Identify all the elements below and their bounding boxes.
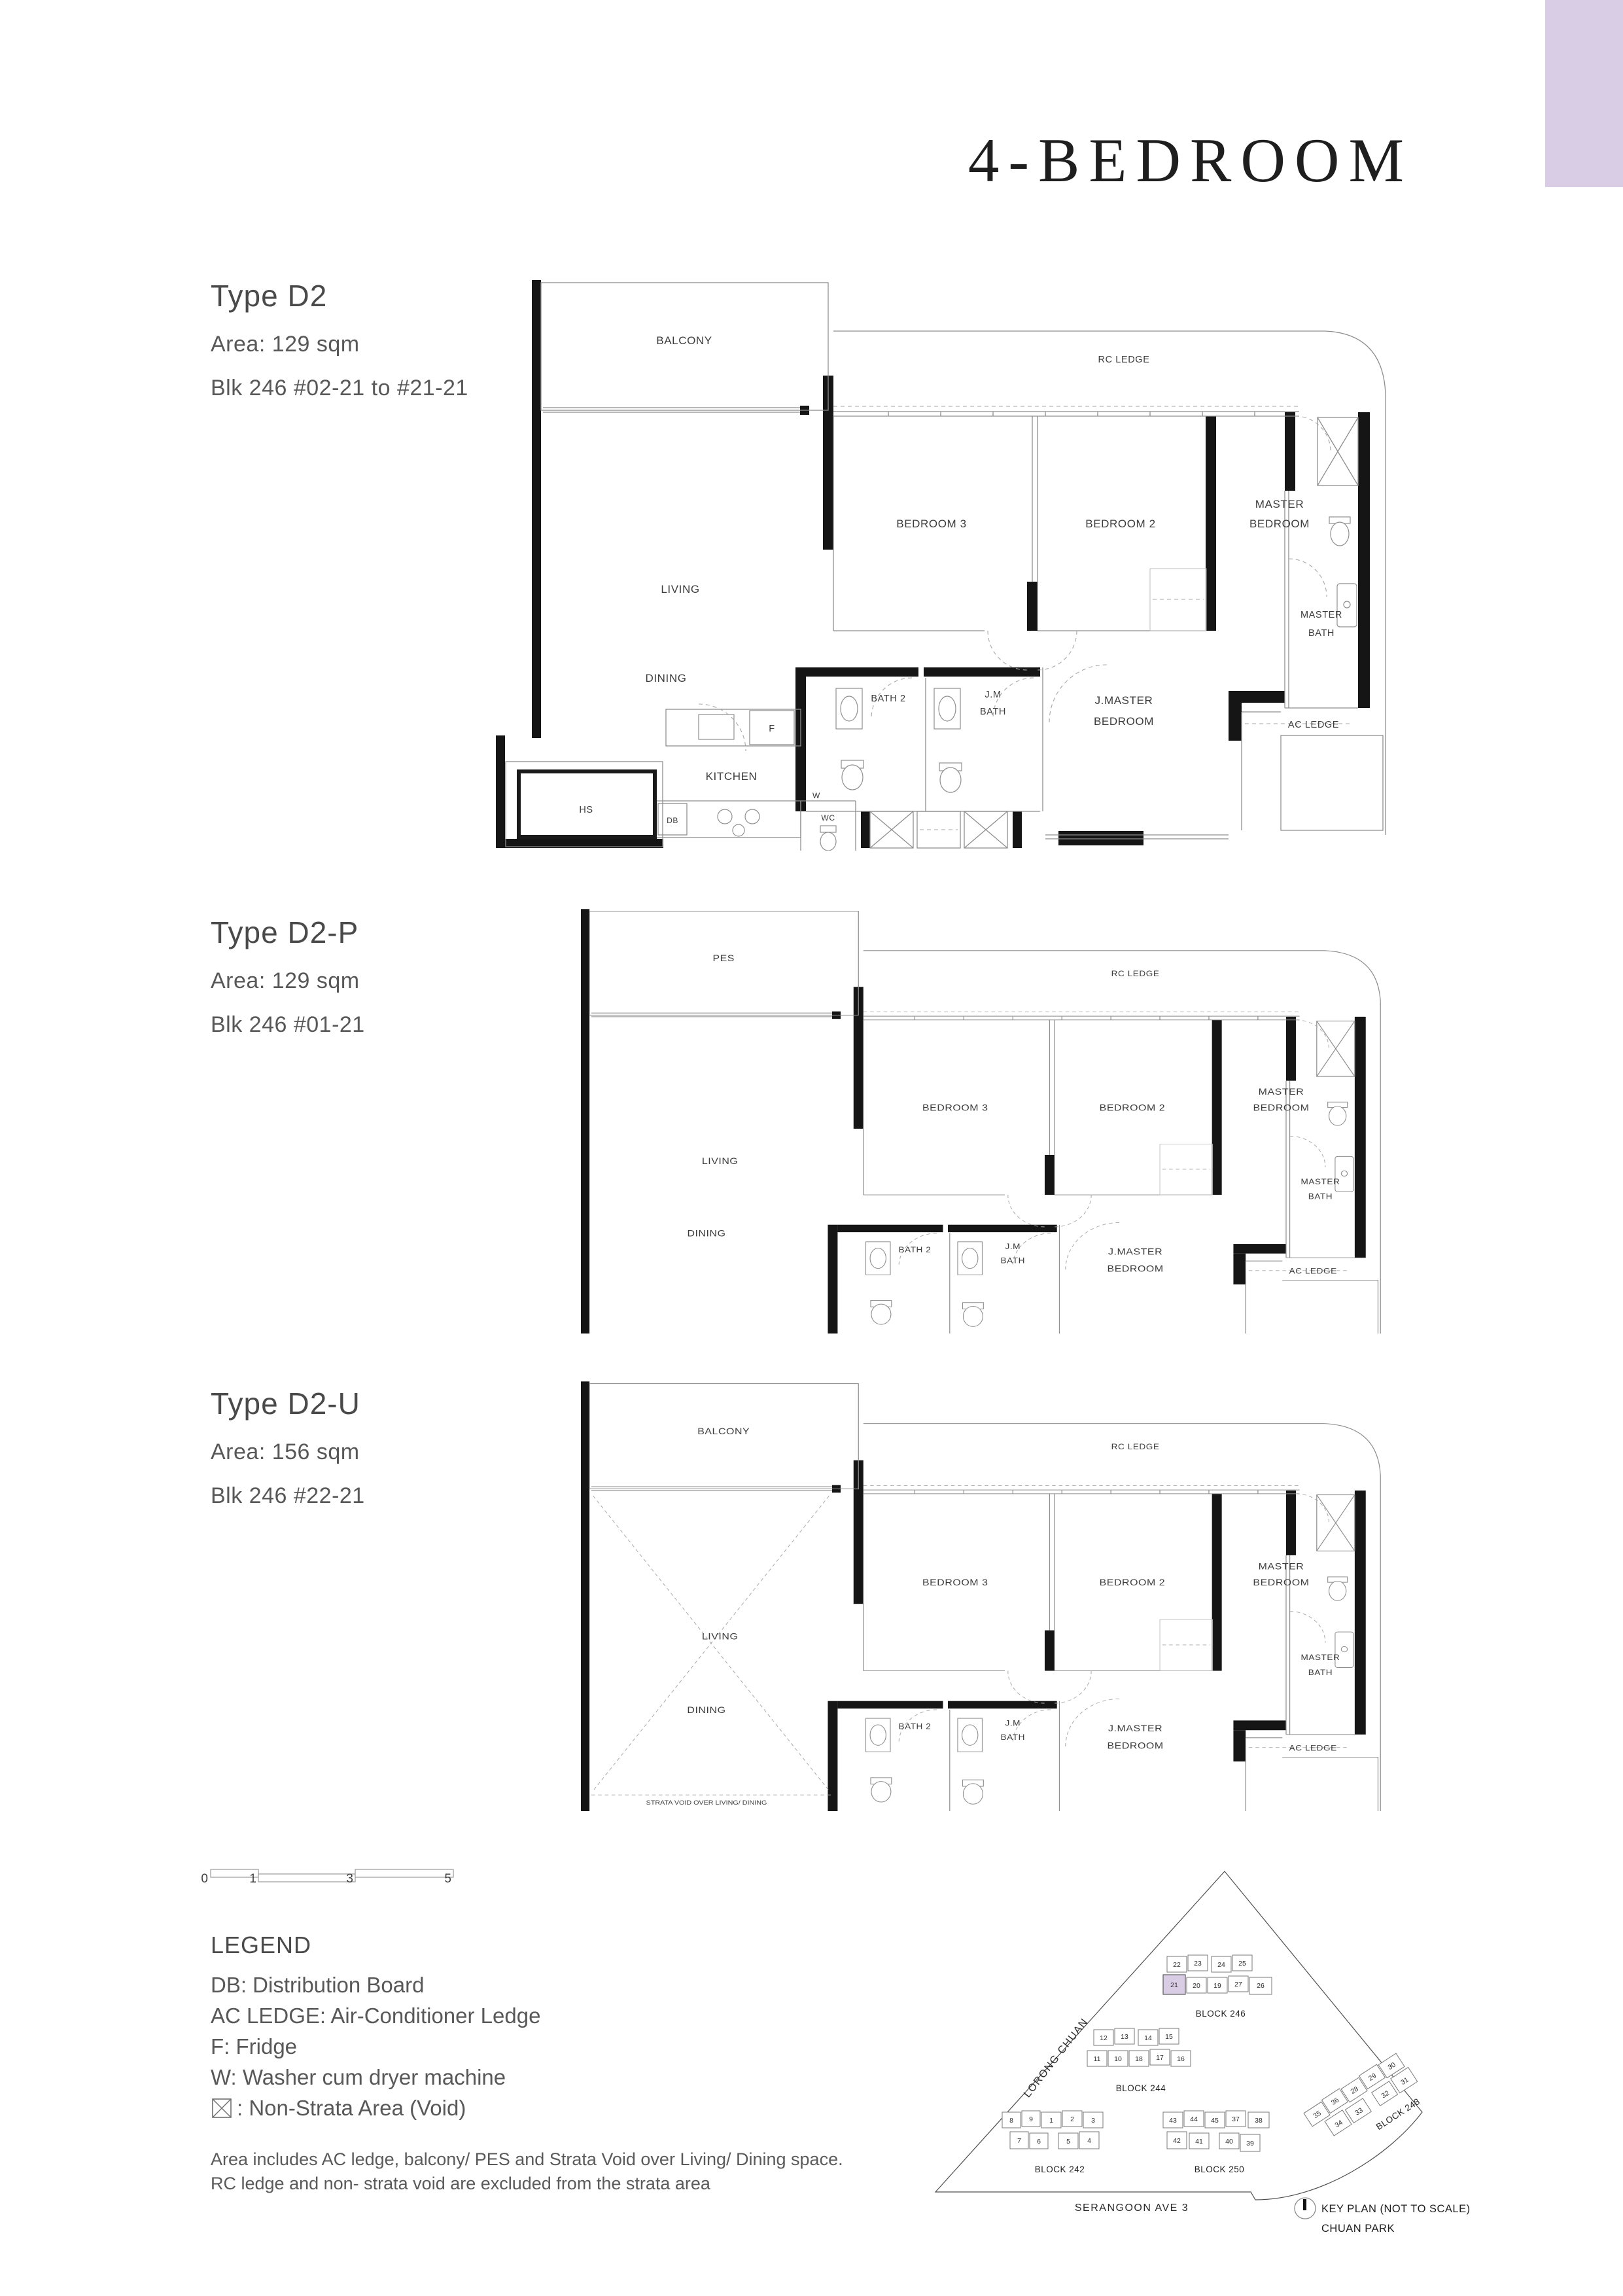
unit-12: 12 [1100, 2034, 1108, 2042]
legend: LEGEND DB: Distribution Board AC LEDGE: … [211, 1932, 540, 2123]
unit-10: 10 [1114, 2055, 1122, 2063]
unit-25: 25 [1238, 1960, 1246, 1968]
unit-3: 3 [1091, 2117, 1095, 2125]
unit-23: 23 [1194, 1960, 1202, 1968]
room-label-master-1: MASTER [1259, 1087, 1304, 1097]
type-d2p-area: Area: 129 sqm [211, 968, 360, 994]
room-label-masterbath-1: MASTER [1300, 1177, 1340, 1186]
room-label-jmaster-1: J.MASTER [1108, 1723, 1162, 1734]
room-label-masterbath-2: BATH [1308, 628, 1335, 639]
room-label-ac-ledge: AC LEDGE [1289, 1267, 1337, 1276]
room-label-living: LIVING [702, 1156, 739, 1167]
unit-19: 19 [1213, 1982, 1221, 1990]
room-label-dining: DINING [645, 672, 686, 684]
accent-corner-tab [1545, 0, 1623, 187]
legend-item-db: DB: Distribution Board [211, 1969, 540, 2000]
unit-15: 15 [1165, 2033, 1173, 2041]
unit-27: 27 [1234, 1981, 1242, 1988]
unit-44: 44 [1190, 2115, 1198, 2123]
room-label-jmaster-2: BEDROOM [1094, 715, 1154, 728]
footnote: Area includes AC ledge, balcony/ PES and… [211, 2147, 852, 2196]
room-label-jmaster-1: J.MASTER [1108, 1246, 1162, 1257]
legend-item-void: : Non-Strata Area (Void) [211, 2093, 540, 2123]
unit-41: 41 [1195, 2138, 1203, 2146]
unit-24: 24 [1217, 1961, 1225, 1969]
room-label-rc-ledge: RC LEDGE [1111, 1442, 1160, 1451]
room-label-jmbath-1: J.M [985, 690, 1001, 700]
room-label-bedroom3: BEDROOM 3 [922, 1578, 988, 1588]
type-d2u-area: Area: 156 sqm [211, 1439, 360, 1465]
block-244-label: BLOCK 244 [1116, 2083, 1166, 2093]
unit-4: 4 [1087, 2137, 1091, 2145]
unit-20: 20 [1193, 1982, 1200, 1990]
footnote-line-1: Area includes AC ledge, balcony/ PES and… [211, 2147, 852, 2172]
room-label-master-2: BEDROOM [1249, 518, 1310, 530]
room-label-db: DB [667, 816, 678, 825]
type-d2u-title: Type D2-U [211, 1386, 360, 1421]
room-label-masterbath-2: BATH [1308, 1668, 1333, 1677]
unit-13: 13 [1121, 2033, 1128, 2041]
unit-22: 22 [1173, 1961, 1181, 1969]
room-label-jmbath-1: J.M [1005, 1242, 1021, 1251]
unit-39: 39 [1246, 2140, 1254, 2147]
unit-1: 1 [1049, 2117, 1053, 2125]
block-242-label: BLOCK 242 [1035, 2164, 1085, 2174]
d2u-strata-void [591, 1496, 833, 1795]
room-label-rc-ledge: RC LEDGE [1111, 969, 1160, 978]
room-label-washer: W [812, 791, 820, 800]
keyplan-block-242: 8 9 1 2 3 7 6 5 4 BLOCK 242 [1002, 2111, 1103, 2174]
room-label-living: LIVING [702, 1631, 739, 1642]
type-d2-title: Type D2 [211, 278, 327, 313]
room-label-pes: PES [712, 953, 735, 964]
unit-38: 38 [1255, 2117, 1263, 2125]
unit-7: 7 [1017, 2137, 1021, 2145]
unit-11: 11 [1094, 2055, 1101, 2063]
unit-14: 14 [1144, 2034, 1152, 2042]
unit-26: 26 [1257, 1982, 1265, 1990]
room-label-ac-ledge: AC LEDGE [1288, 720, 1339, 730]
d2-heavy-walls [496, 280, 1370, 848]
room-label-bedroom3: BEDROOM 3 [922, 1103, 988, 1113]
room-label-bedroom2: BEDROOM 2 [1085, 518, 1155, 530]
room-label-masterbath-1: MASTER [1300, 610, 1342, 620]
room-label-master-2: BEDROOM [1253, 1578, 1309, 1588]
legend-item-acledge: AC LEDGE: Air-Conditioner Ledge [211, 2000, 540, 2031]
room-label-balcony: BALCONY [697, 1426, 750, 1437]
room-label-rc-ledge: RC LEDGE [1098, 355, 1150, 365]
d2u-thin-walls [589, 1384, 1380, 1811]
unit-16: 16 [1177, 2055, 1185, 2063]
room-label-bedroom3: BEDROOM 3 [896, 518, 966, 530]
keyplan-project-name: CHUAN PARK [1321, 2223, 1395, 2234]
unit-37: 37 [1232, 2115, 1240, 2123]
keyplan-block-250: 43 44 45 37 38 42 41 40 39 BLOCK 250 [1163, 2111, 1269, 2174]
floor-plan-d2u: BALCONY RC LEDGE LIVING BEDROOM 3 BEDROO… [581, 1379, 1402, 1811]
type-d2u-blk: Blk 246 #22-21 [211, 1483, 365, 1509]
room-label-jmaster-2: BEDROOM [1108, 1263, 1164, 1274]
road-lorong-chuan: LORONG CHUAN [1022, 2016, 1091, 2100]
room-label-wc: WC [821, 813, 835, 822]
block-246-label: BLOCK 246 [1196, 2009, 1246, 2019]
keyplan-block-244: 12 13 14 15 11 10 18 17 16 BLOCK 244 [1087, 2028, 1191, 2093]
keyplan-block-248: 35 36 28 29 30 34 33 32 31 BLOCK 248 [1303, 2051, 1429, 2161]
unit-40: 40 [1225, 2138, 1233, 2146]
block-250-label: BLOCK 250 [1195, 2164, 1245, 2174]
unit-45: 45 [1211, 2117, 1219, 2125]
room-label-dining: DINING [687, 1705, 725, 1716]
d2-fixtures [836, 517, 1357, 792]
type-d2p-title: Type D2-P [211, 915, 358, 950]
keyplan-caption: KEY PLAN (NOT TO SCALE) [1321, 2203, 1471, 2215]
unit-42: 42 [1173, 2137, 1181, 2145]
scale-0: 0 [201, 1872, 208, 1886]
legend-void-label: : Non-Strata Area (Void) [237, 2093, 466, 2123]
type-d2p-blk: Blk 246 #01-21 [211, 1012, 365, 1038]
floor-plan-d2: BALCONY RC LEDGE LIVING BEDROOM 3 BEDROO… [470, 277, 1405, 851]
room-label-jmbath-2: BATH [980, 707, 1006, 717]
void-hatch-icon [211, 2097, 233, 2119]
legend-item-fridge: F: Fridge [211, 2031, 540, 2062]
scale-bar: 0 1 3 5 [190, 1862, 478, 1894]
room-label-jmbath-2: BATH [1001, 1733, 1025, 1742]
room-label-masterbath-2: BATH [1308, 1192, 1333, 1201]
unit-8: 8 [1009, 2117, 1013, 2125]
room-label-bath2: BATH 2 [871, 694, 905, 704]
unit-17: 17 [1156, 2054, 1164, 2062]
strata-void-note: STRATA VOID OVER LIVING/ DINING [646, 1800, 767, 1807]
unit-2: 2 [1070, 2115, 1074, 2123]
room-label-bedroom2: BEDROOM 2 [1100, 1578, 1166, 1588]
d2p-fixtures [866, 1102, 1354, 1326]
room-label-hs: HS [579, 805, 593, 815]
unit-6: 6 [1037, 2138, 1041, 2146]
room-label-bath2: BATH 2 [898, 1245, 931, 1254]
keyplan-block-246: 22 23 24 25 21 20 19 27 26 BLOCK 246 [1163, 1955, 1272, 2019]
key-plan: LORONG CHUAN 22 23 24 25 21 20 19 27 26 … [903, 1857, 1616, 2279]
room-label-jmaster-1: J.MASTER [1095, 694, 1153, 707]
legend-title: LEGEND [211, 1932, 540, 1959]
room-label-fridge: F [769, 724, 775, 734]
legend-item-washer: W: Washer cum dryer machine [211, 2062, 540, 2093]
room-label-jmbath-2: BATH [1001, 1256, 1025, 1265]
unit-43: 43 [1169, 2117, 1177, 2125]
scale-1: 1 [249, 1872, 256, 1886]
page-title: 4-BEDROOM [752, 124, 1413, 196]
room-label-bath2: BATH 2 [898, 1722, 931, 1731]
room-label-dining: DINING [687, 1229, 725, 1239]
room-label-master-1: MASTER [1259, 1561, 1304, 1572]
room-label-masterbath-1: MASTER [1300, 1653, 1340, 1662]
north-indicator-icon [1295, 2198, 1316, 2219]
room-label-master-2: BEDROOM [1253, 1103, 1309, 1113]
scale-3: 3 [346, 1872, 353, 1886]
room-label-balcony: BALCONY [656, 334, 712, 347]
room-label-jmaster-2: BEDROOM [1107, 1740, 1163, 1751]
type-d2-area: Area: 129 sqm [211, 332, 360, 357]
type-d2-blk: Blk 246 #02-21 to #21-21 [211, 376, 468, 401]
unit-18: 18 [1135, 2055, 1143, 2063]
scale-5: 5 [444, 1872, 451, 1886]
floor-plan-d2p: PES RC LEDGE LIVING BEDROOM 3 BEDROOM 2 … [581, 907, 1402, 1333]
d2p-thin-walls [589, 911, 1380, 1333]
unit-5: 5 [1066, 2138, 1070, 2146]
room-label-kitchen: KITCHEN [706, 770, 758, 783]
brochure-page: 4-BEDROOM Type D2 Area: 129 sqm Blk 246 … [0, 0, 1623, 2296]
room-label-living: LIVING [661, 583, 699, 595]
room-label-bedroom2: BEDROOM 2 [1100, 1103, 1165, 1113]
room-label-ac-ledge: AC LEDGE [1289, 1743, 1337, 1752]
footnote-line-2: RC ledge and non- strata void are exclud… [211, 2172, 852, 2196]
d2u-fixtures [866, 1577, 1354, 1804]
unit-9: 9 [1029, 2115, 1033, 2123]
room-label-master-1: MASTER [1255, 498, 1304, 510]
room-label-jmbath-1: J.M [1005, 1718, 1021, 1727]
road-serangoon-ave-3: SERANGOON AVE 3 [1075, 2202, 1189, 2214]
unit-21-highlighted: 21 [1170, 1981, 1178, 1989]
